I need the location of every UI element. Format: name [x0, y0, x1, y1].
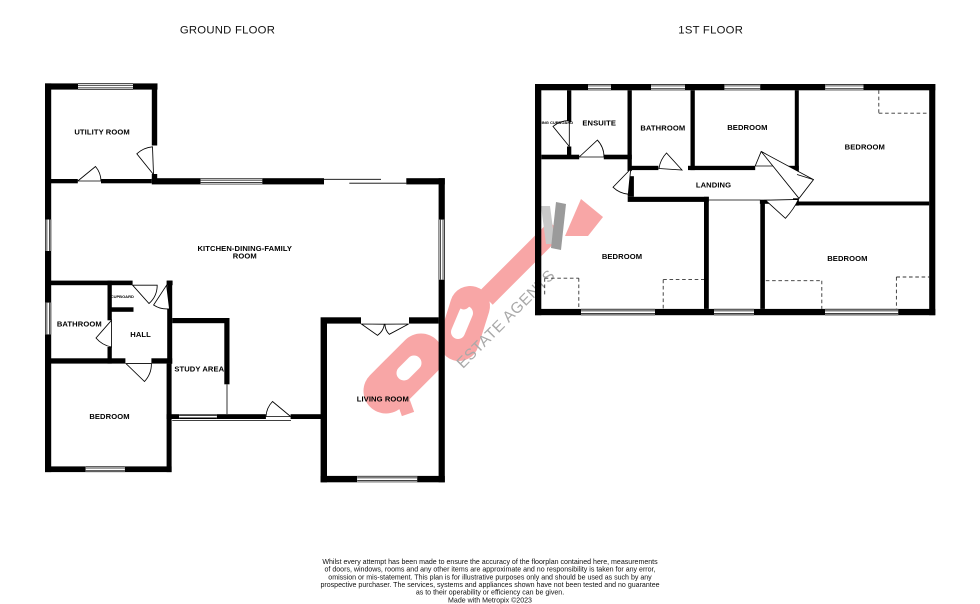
svg-text:BATHROOM: BATHROOM: [640, 123, 685, 132]
svg-text:ENSUITE: ENSUITE: [582, 118, 616, 127]
svg-text:BEDROOM: BEDROOM: [89, 412, 129, 421]
svg-text:BEDROOM: BEDROOM: [827, 254, 867, 263]
svg-text:omission or mis-statement. Thi: omission or mis-statement. This plan is …: [328, 574, 652, 581]
svg-text:BEDROOM: BEDROOM: [727, 123, 767, 132]
svg-text:Whilst every attempt has been: Whilst every attempt has been made to en…: [322, 559, 658, 566]
svg-text:as to their operability or eff: as to their operability or efficiency ca…: [416, 590, 564, 597]
svg-text:UTILITY ROOM: UTILITY ROOM: [74, 128, 129, 137]
svg-text:AIRING CUPBOARD: AIRING CUPBOARD: [535, 120, 573, 125]
svg-text:of doors, windows, rooms and a: of doors, windows, rooms and any other i…: [325, 567, 656, 574]
svg-text:STUDY AREA: STUDY AREA: [174, 365, 224, 374]
svg-text:BEDROOM: BEDROOM: [845, 143, 885, 152]
svg-text:BATHROOM: BATHROOM: [57, 319, 102, 328]
svg-text:Made with Metropix ©2023: Made with Metropix ©2023: [448, 596, 532, 604]
svg-text:GROUND FLOOR: GROUND FLOOR: [180, 25, 275, 37]
svg-text:CUPBOARD: CUPBOARD: [111, 294, 134, 299]
svg-text:LANDING: LANDING: [696, 181, 731, 190]
svg-text:1ST FLOOR: 1ST FLOOR: [678, 25, 743, 37]
svg-text:HALL: HALL: [130, 330, 151, 339]
svg-text:ROOM: ROOM: [233, 252, 257, 261]
svg-text:BEDROOM: BEDROOM: [602, 252, 642, 261]
svg-text:LIVING ROOM: LIVING ROOM: [357, 395, 409, 404]
svg-text:prospective purchaser. The ser: prospective purchaser. The services, sys…: [320, 582, 659, 589]
